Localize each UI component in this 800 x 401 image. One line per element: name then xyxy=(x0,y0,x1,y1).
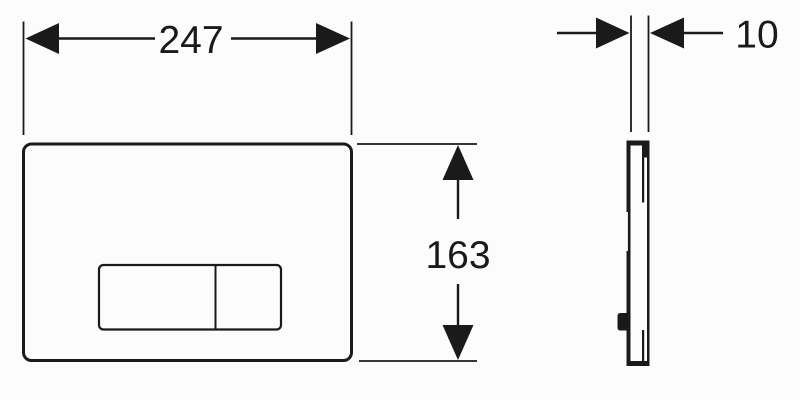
arrowhead-inward-left-icon xyxy=(650,18,684,49)
dimension-depth: 10 xyxy=(557,14,779,133)
dimension-height: 163 xyxy=(357,144,491,361)
side-profile-interior xyxy=(631,146,648,362)
drawing-canvas: 247 163 10 xyxy=(0,0,800,401)
side-profile-inner-line-lower xyxy=(642,330,644,361)
front-view xyxy=(24,144,352,361)
arrowhead-left-icon xyxy=(26,23,60,54)
side-view xyxy=(618,141,650,367)
button-panel-outline xyxy=(99,265,281,330)
technical-drawing: 247 163 10 xyxy=(0,0,800,401)
plate-outline xyxy=(24,144,352,361)
arrowhead-inward-right-icon xyxy=(596,18,630,49)
width-dimension-label: 247 xyxy=(158,19,223,62)
arrowhead-down-icon xyxy=(443,325,474,360)
arrowhead-right-icon xyxy=(316,23,350,54)
height-dimension-label: 163 xyxy=(425,234,490,277)
arrowhead-up-icon xyxy=(443,145,474,180)
side-profile-inner-line-upper xyxy=(642,146,644,203)
dimension-width: 247 xyxy=(24,19,352,135)
side-profile-edge-notch xyxy=(627,212,628,251)
depth-dimension-label: 10 xyxy=(735,14,778,57)
mounting-clip xyxy=(618,313,627,331)
